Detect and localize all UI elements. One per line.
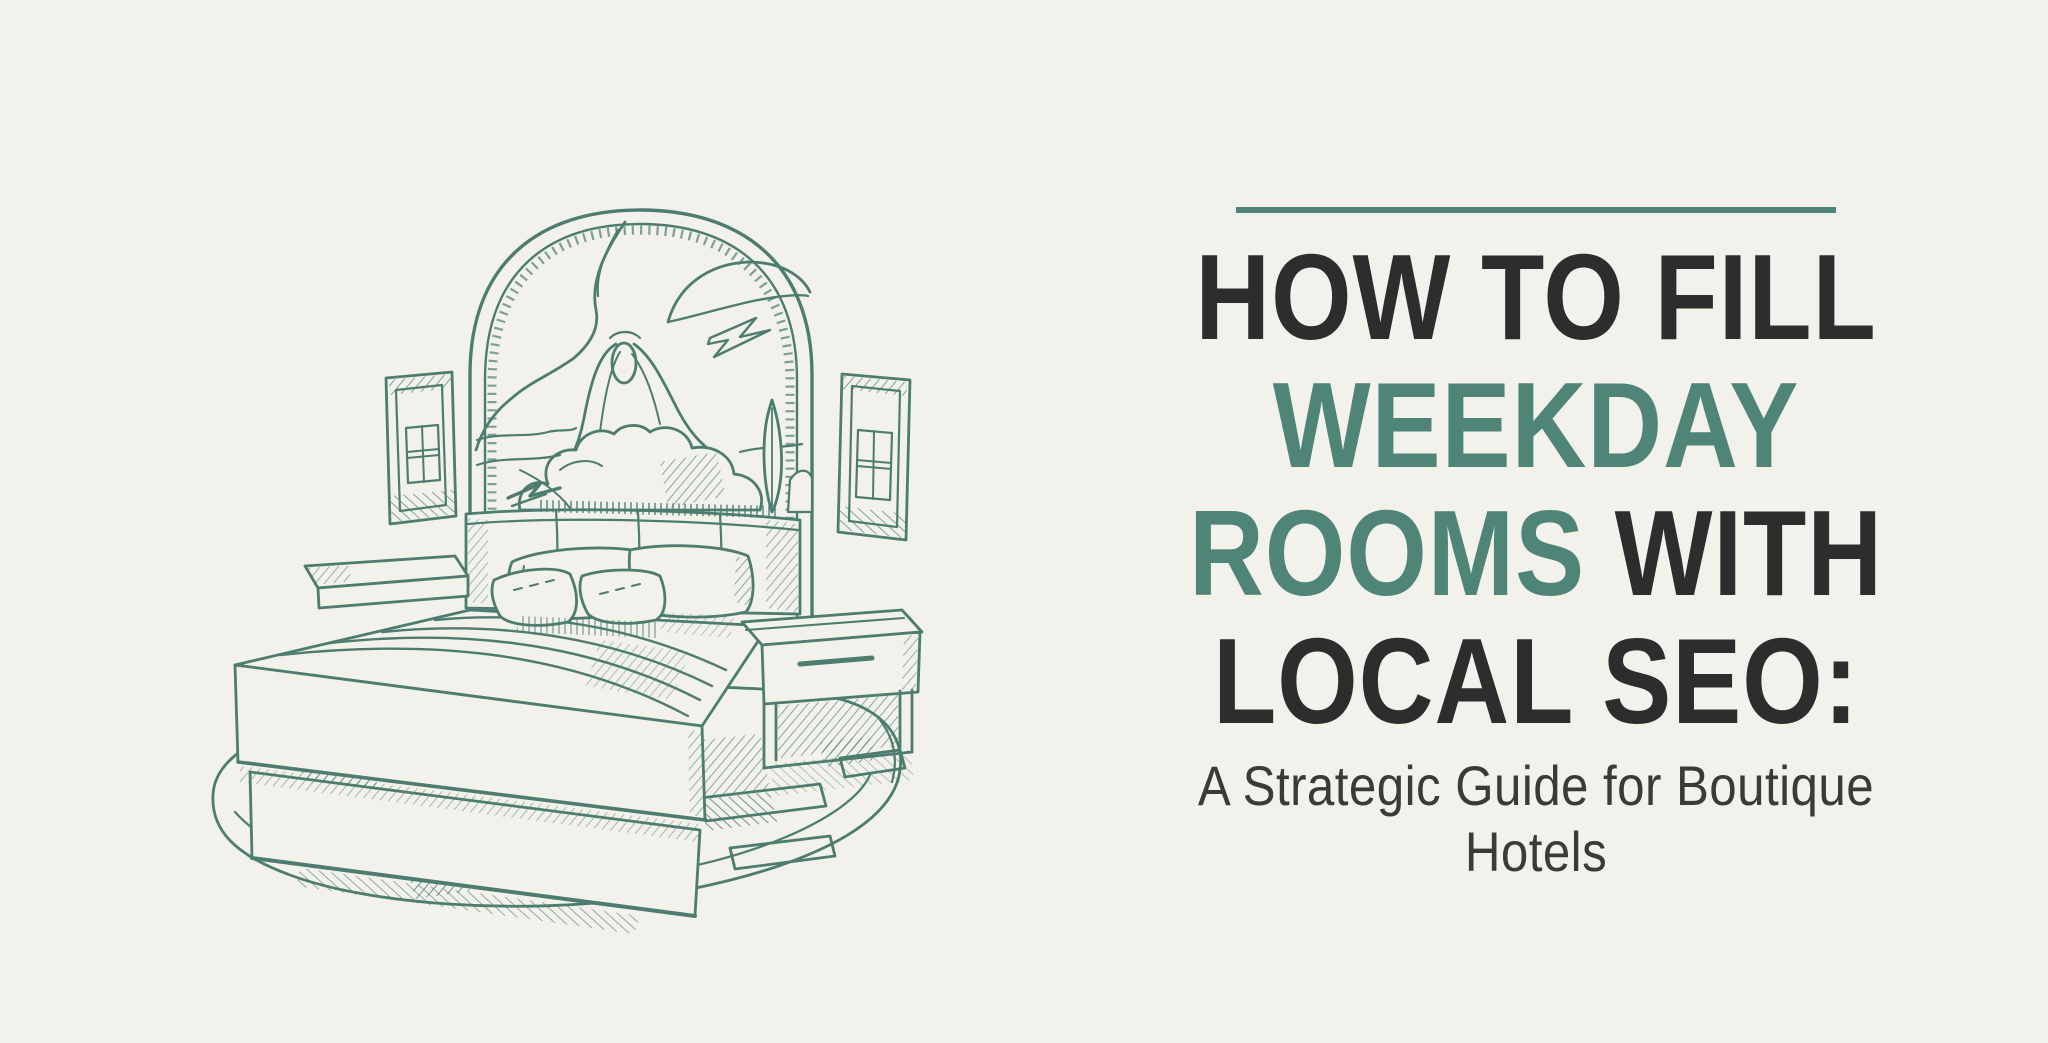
- hotel-bed-illustration: [0, 0, 1024, 1043]
- headboard-mural-sketch: [476, 222, 812, 512]
- nightstand-sketch: [742, 610, 922, 796]
- title-line-3-rest: WITH: [1585, 485, 1883, 621]
- pillows-sketch: [492, 546, 753, 638]
- title-line-1: HOW TO FILL: [1101, 233, 1971, 361]
- accent-rule: [1236, 207, 1836, 213]
- page-title: HOW TO FILL WEEKDAY ROOMS WITH LOCAL SEO…: [1024, 233, 2048, 745]
- page-subtitle: A Strategic Guide for Boutique Hotels: [1024, 753, 2048, 885]
- title-line-3-accent: ROOMS: [1189, 485, 1585, 621]
- subtitle-line-2: Hotels: [1085, 819, 1986, 885]
- bed-sketch: [235, 610, 770, 934]
- title-line-2: WEEKDAY: [1101, 361, 1971, 489]
- subtitle-line-1: A Strategic Guide for Boutique: [1085, 753, 1986, 819]
- infographic-cover: { "page": { "background_color": "#f2f1ec…: [0, 0, 2048, 1043]
- wall-frame-left-sketch: [386, 372, 456, 524]
- title-line-4: LOCAL SEO:: [1101, 617, 1971, 745]
- wall-frame-right-sketch: [838, 374, 910, 540]
- left-side-table-sketch: [305, 556, 468, 608]
- title-line-3: ROOMS WITH: [1101, 489, 1971, 617]
- title-panel: HOW TO FILL WEEKDAY ROOMS WITH LOCAL SEO…: [1024, 0, 2048, 885]
